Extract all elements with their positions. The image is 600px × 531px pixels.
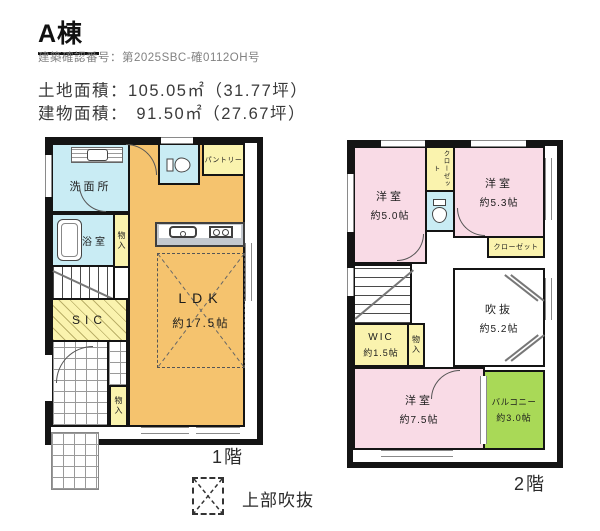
void-corner-line: [511, 334, 545, 361]
void-corner-line: [511, 274, 545, 301]
stairs-1f: [51, 265, 115, 300]
wic-size: 約1.5帖: [363, 346, 399, 359]
room-balcony: バルコニー 約3.0帖: [483, 370, 545, 450]
window: [196, 427, 240, 434]
window: [381, 140, 425, 147]
window: [347, 268, 354, 296]
bedroom-c-label: 洋室: [405, 392, 433, 408]
ldk-size-label: 約17.5帖: [172, 315, 229, 331]
ldk-upper-void-overlay: LDK 約17.5帖: [157, 253, 245, 368]
balcony-size: 約3.0帖: [496, 411, 532, 424]
pantry-label: パントリー: [205, 155, 243, 165]
window: [245, 243, 252, 301]
room-closet-top: クローゼット: [425, 146, 455, 192]
window: [347, 174, 354, 232]
entrance-genkan: [51, 340, 109, 427]
basin-bowl-icon: [87, 149, 108, 161]
stair-diagonal: [355, 269, 414, 319]
bedroom-b-size: 約5.3帖: [480, 194, 519, 209]
bathroom-label: 浴室: [82, 233, 108, 248]
window: [141, 427, 189, 434]
window: [545, 278, 552, 320]
room-closet-right: クローゼット: [487, 236, 545, 258]
toilet-bowl-icon: [175, 157, 191, 172]
stairs-2f: [353, 264, 412, 325]
bedroom-a-size: 約5.0帖: [371, 207, 410, 222]
entrance-approach-tiles: [51, 432, 99, 490]
void-size: 約5.2帖: [480, 320, 519, 335]
bedroom-c-size: 約7.5帖: [400, 411, 439, 426]
wic-label: WIC: [368, 332, 393, 343]
room-bathroom: 浴室: [51, 213, 115, 268]
void-corner-line: [505, 274, 539, 301]
window: [161, 137, 193, 144]
floorplan-flyer: A棟 建築確認番号：第2025SBC-確0112OH号 土地面積：105.05㎡…: [0, 0, 600, 531]
window: [471, 140, 526, 147]
room-storage-bath: 物入: [113, 213, 130, 268]
room-storage-entry: 物入: [109, 385, 128, 427]
upper-void-legend-label: 上部吹抜: [242, 486, 314, 511]
closet-right-label: クローゼット: [494, 242, 539, 252]
window: [45, 155, 52, 197]
bedroom-a-label: 洋室: [376, 188, 404, 204]
door-arc: [56, 346, 93, 383]
toilet-tank-icon: [167, 158, 174, 171]
entrance-door-opening: [45, 355, 52, 401]
toilet-icon: [167, 156, 192, 172]
bathtub-icon: [57, 219, 82, 261]
kitchen-counter: [155, 222, 245, 247]
window: [545, 158, 552, 220]
room-wic: WIC 約1.5帖: [353, 323, 409, 367]
washbasin-icon: [71, 147, 123, 163]
toilet-tank-icon: [433, 199, 446, 206]
building-area-value: 91.50㎡（27.67坪）: [128, 100, 306, 124]
floor2-plan: 洋室 約5.0帖 クローゼット 洋室 約5.3帖 クローゼット 吹抜 約5.2帖: [347, 140, 563, 468]
storage-entry-label: 物入: [113, 396, 124, 416]
toilet-icon: [432, 199, 448, 224]
sink-icon: [169, 226, 197, 238]
entrance-hall: [107, 340, 128, 387]
floor1-plan: 洗面所 浴室 物入 SIC 物入 パントリー: [45, 137, 263, 445]
bedroom-b-label: 洋室: [485, 175, 513, 191]
toilet-bowl-icon: [432, 207, 447, 223]
window: [480, 376, 487, 444]
room-pantry: パントリー: [202, 143, 245, 176]
storage-bath-label: 物入: [116, 231, 127, 251]
floor1-label: 1階: [212, 443, 244, 469]
closet-top-label: クローゼット: [430, 148, 450, 190]
room-bedroom-c: 洋室 約7.5帖: [353, 367, 485, 450]
upper-void-legend-icon: [192, 477, 224, 515]
void-corner-line: [505, 334, 539, 361]
confirmation-number: 建築確認番号：第2025SBC-確0112OH号: [38, 49, 260, 65]
land-area-row: 土地面積：105.05㎡（31.77坪）: [38, 77, 306, 101]
void-label: 吹抜: [485, 301, 513, 317]
room-sic: SIC: [51, 298, 128, 342]
room-toilet-2f: [425, 190, 455, 232]
balcony-label: バルコニー: [492, 396, 537, 408]
room-toilet-1f: [158, 143, 200, 185]
ldk-label: LDK: [178, 290, 223, 306]
stair-diagonal: [53, 270, 115, 300]
floor2-label: 2階: [514, 470, 546, 496]
land-area-label: 土地面積：: [38, 82, 128, 100]
storage-2f-label: 物入: [411, 335, 422, 355]
sic-label: SIC: [72, 313, 107, 327]
room-storage-2f: 物入: [407, 323, 425, 367]
building-area-label: 建物面積：: [38, 105, 128, 123]
building-area-row: 建物面積：91.50㎡（27.67坪）: [38, 100, 306, 124]
land-area-value: 105.05㎡（31.77坪）: [128, 77, 306, 101]
window: [381, 450, 453, 457]
room-void: 吹抜 約5.2帖: [453, 268, 545, 367]
stove-icon: [209, 226, 233, 238]
